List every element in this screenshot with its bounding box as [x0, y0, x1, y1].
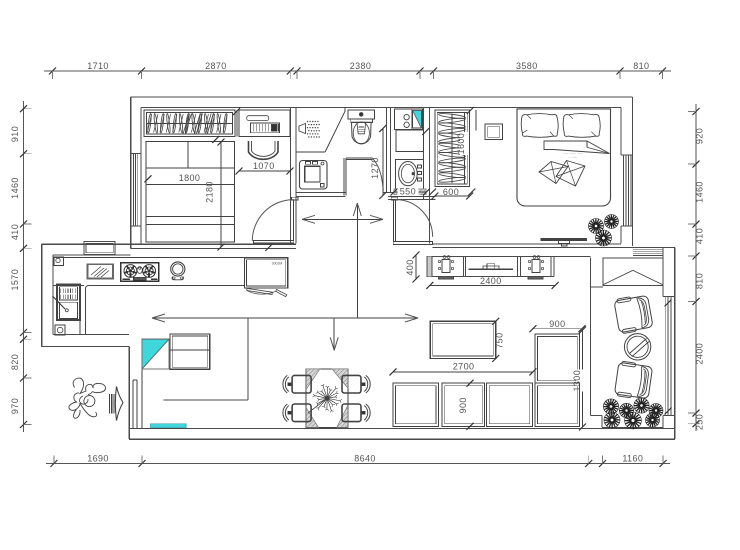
svg-text:2400: 2400	[695, 343, 705, 365]
svg-text:1070: 1070	[253, 161, 275, 171]
svg-text:810: 810	[633, 61, 649, 71]
svg-text:~ ~~: ~ ~~	[569, 156, 578, 160]
svg-text:1570: 1570	[10, 269, 20, 291]
svg-text:1460: 1460	[10, 177, 20, 199]
svg-text:910: 910	[10, 126, 20, 142]
svg-text:820: 820	[10, 354, 20, 370]
svg-text:1160: 1160	[622, 454, 643, 464]
svg-text:1800: 1800	[179, 173, 201, 183]
svg-text:1460: 1460	[695, 181, 705, 203]
svg-text:900: 900	[458, 397, 468, 413]
svg-text:750: 750	[494, 332, 504, 348]
svg-text:2380: 2380	[350, 61, 372, 71]
svg-text:600: 600	[443, 187, 459, 197]
svg-text:400: 400	[405, 259, 415, 275]
svg-text:250: 250	[695, 414, 705, 430]
svg-text:1270: 1270	[370, 157, 380, 179]
svg-text:1600: 1600	[456, 133, 466, 155]
svg-text:920: 920	[695, 128, 705, 144]
svg-text:2700: 2700	[453, 362, 475, 372]
svg-text:970: 970	[10, 398, 20, 414]
svg-text:2180: 2180	[205, 181, 215, 203]
svg-text:550: 550	[400, 187, 416, 197]
svg-text:1710: 1710	[87, 61, 109, 71]
svg-text:2400: 2400	[480, 276, 502, 286]
svg-text:2870: 2870	[205, 61, 227, 71]
svg-text:8640: 8640	[354, 454, 376, 464]
svg-text:3002M: 3002M	[272, 262, 283, 266]
svg-text:900: 900	[549, 319, 565, 329]
svg-text:410: 410	[10, 224, 20, 240]
svg-text:810: 810	[695, 273, 705, 289]
svg-text:3580: 3580	[516, 61, 538, 71]
svg-text:410: 410	[695, 228, 705, 244]
svg-text:1690: 1690	[87, 454, 109, 464]
